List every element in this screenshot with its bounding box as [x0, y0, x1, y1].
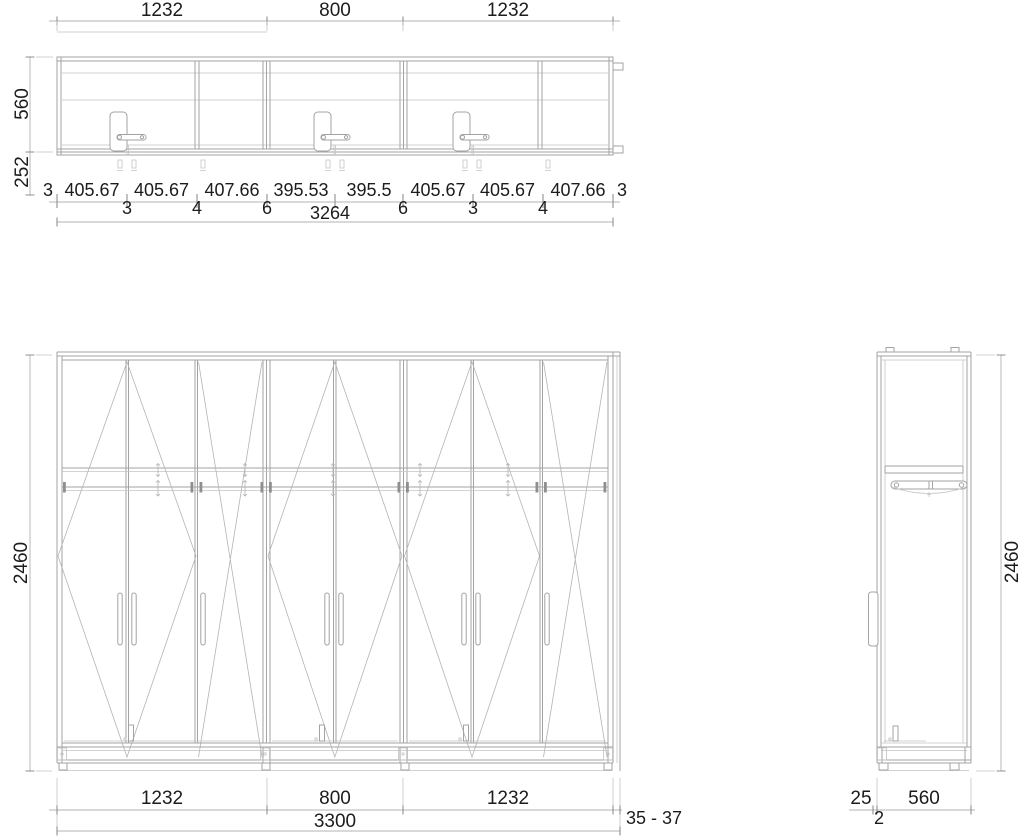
- dim-label: 1232: [487, 788, 529, 809]
- paper-background: [0, 0, 1023, 839]
- door-handle-icon: [132, 593, 136, 645]
- technical-drawing-canvas: 1232 800 1232: [0, 0, 1023, 839]
- dim-label: 405.67: [480, 180, 535, 200]
- door-handle-icon: [118, 593, 122, 645]
- door-handle-icon: [339, 593, 343, 645]
- dim-label: 405.67: [64, 180, 119, 200]
- dim-label: 1232: [141, 0, 183, 21]
- door-handle-icon: [545, 593, 549, 645]
- gap-dim-label: 3: [122, 198, 132, 218]
- dim-label: 395.5: [346, 180, 391, 200]
- dim-label: 3: [43, 180, 53, 200]
- door-handle-side-icon: [869, 592, 879, 646]
- lock-body: [453, 112, 470, 151]
- gap-dim-label: 4: [192, 198, 202, 218]
- dim-label: 405.67: [410, 180, 465, 200]
- dim-label: 560: [908, 788, 940, 809]
- gap-dim-label: 6: [262, 198, 272, 218]
- dim-label: 800: [319, 0, 351, 21]
- dim-label: 1232: [141, 788, 183, 809]
- dim-label: 800: [319, 788, 351, 809]
- dim-label: 25: [850, 788, 871, 809]
- dim-label: 405.67: [134, 180, 189, 200]
- gap-dim-label: 6: [398, 198, 408, 218]
- dim-label-total: 3300: [314, 811, 356, 832]
- door-handle-icon: [476, 593, 480, 645]
- dim-label: 407.66: [550, 180, 605, 200]
- lock-body: [314, 112, 331, 151]
- dim-label: 3: [617, 180, 627, 200]
- gap-dim-label: 3: [468, 198, 478, 218]
- wardrobe-technical-drawing: 1232 800 1232: [0, 0, 1023, 839]
- gap-dim-label: 4: [538, 198, 548, 218]
- dim-label: 252: [12, 156, 33, 188]
- lock-body: [110, 112, 127, 151]
- door-handle-icon: [462, 593, 466, 645]
- dim-label: 2460: [1002, 541, 1023, 583]
- door-handle-icon: [201, 593, 205, 645]
- dim-label: 407.66: [204, 180, 259, 200]
- dim-label: 2460: [11, 542, 32, 584]
- door-handle-icon: [325, 593, 329, 645]
- dim-label: 1232: [487, 0, 529, 21]
- dim-label: 560: [12, 88, 33, 120]
- dim-label: 395.53: [273, 180, 328, 200]
- dim-label-tolerance: 35 - 37: [626, 808, 682, 828]
- dim-label-total: 3264: [310, 203, 350, 223]
- dim-label: 2: [874, 808, 884, 828]
